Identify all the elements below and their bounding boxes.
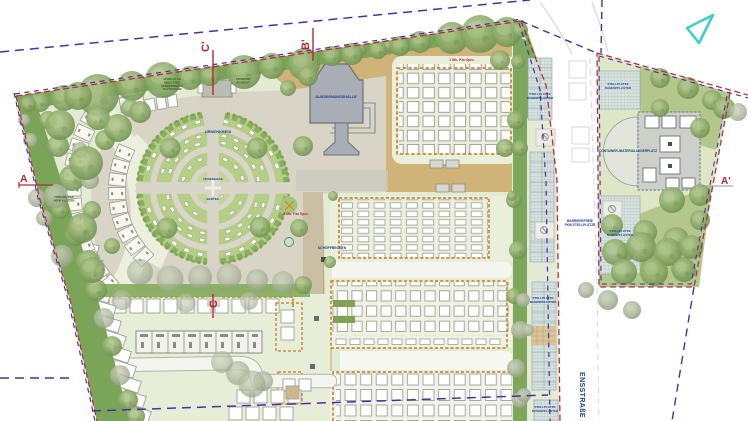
svg-text:C: C [208, 300, 220, 308]
svg-text:1 Stk. Pza Spec.: 1 Stk. Pza Spec. [283, 212, 309, 216]
svg-text:MEHR KLASSEN: MEHR KLASSEN [54, 198, 75, 202]
svg-text:URNENGRAB: URNENGRAB [203, 177, 223, 181]
svg-text:A': A' [721, 176, 731, 187]
svg-text:FRIEDWÄLDER: FRIEDWÄLDER [54, 195, 73, 199]
svg-text:STAND: KLAN: STAND: KLAN [163, 77, 181, 81]
svg-text:C': C' [200, 41, 212, 52]
svg-text:PKW STELLPLÄTZE: PKW STELLPLÄTZE [565, 223, 596, 227]
svg-text:SCHÖPFBECKEN: SCHÖPFBECKEN [318, 245, 347, 250]
svg-text:RASENPFLASTER: RASENPFLASTER [527, 96, 554, 100]
svg-text:BARTEIL: BARTEIL [207, 197, 220, 201]
svg-text:CONTAINER-/MATERIALLAGERPLATZ: CONTAINER-/MATERIALLAGERPLATZ [599, 149, 657, 153]
svg-text:ENSSTRAßE: ENSSTRAßE [578, 372, 585, 418]
svg-text:RASENPFLASTER: RASENPFLASTER [605, 86, 632, 90]
svg-text:A: A [20, 173, 28, 185]
svg-text:AUS ROTSAND: AUS ROTSAND [162, 87, 181, 91]
svg-text:NICHT STILE: NICHT STILE [164, 80, 180, 84]
svg-text:AUSSICHT: AUSSICHT [236, 80, 250, 84]
svg-text:RASENPFLASTER: RASENPFLASTER [532, 409, 559, 413]
svg-text:B': B' [300, 39, 312, 50]
svg-text:URNENKREIS: URNENKREIS [205, 129, 232, 134]
svg-text:RASENPFLASTER: RASENPFLASTER [530, 300, 557, 304]
svg-text:STANDTEN: STANDTEN [236, 77, 250, 81]
svg-text:RASENPFLASTER: RASENPFLASTER [607, 233, 634, 237]
svg-text:1 Stk. Pza Spec.: 1 Stk. Pza Spec. [449, 58, 475, 62]
svg-text:AUSSEGNUNGSHALLE: AUSSEGNUNGSHALLE [315, 95, 357, 99]
